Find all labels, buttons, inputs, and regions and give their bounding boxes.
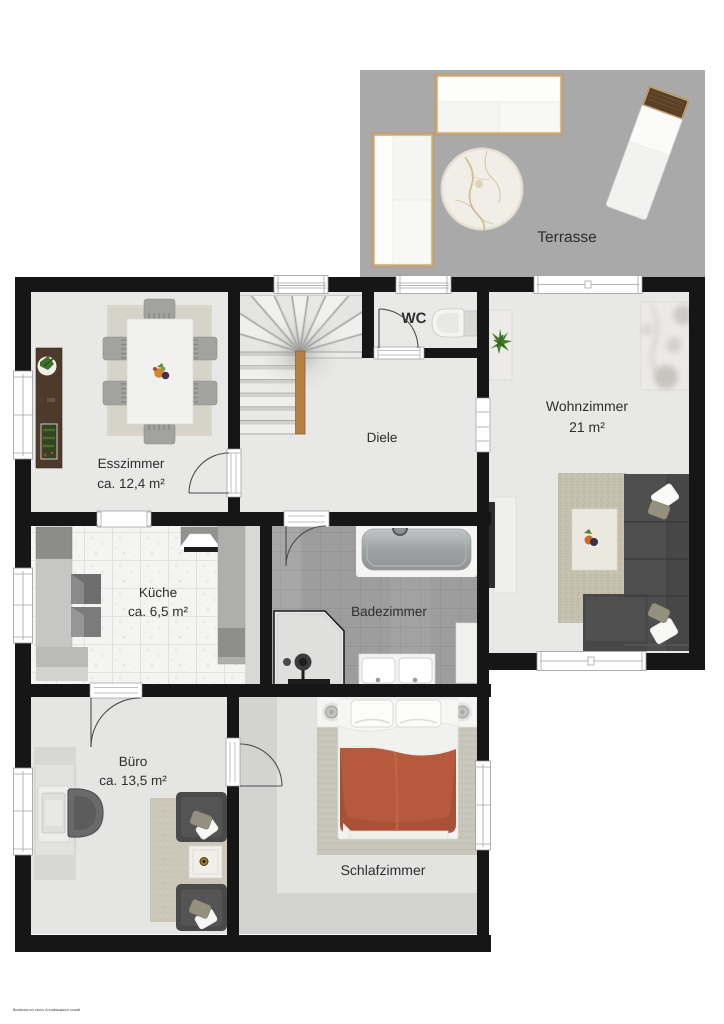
svg-text:Terrasse: Terrasse xyxy=(537,229,596,246)
svg-text:ca. 12,4 m²: ca. 12,4 m² xyxy=(97,476,165,491)
svg-text:Diele: Diele xyxy=(367,430,398,445)
svg-text:Büro: Büro xyxy=(119,754,148,769)
svg-text:ca. 13,5 m²: ca. 13,5 m² xyxy=(99,773,167,788)
svg-text:Bearbeitet mit einem Grundriss: Bearbeitet mit einem Grundrissplaner ers… xyxy=(13,1008,80,1012)
svg-text:Wohnzimmer: Wohnzimmer xyxy=(546,398,629,414)
svg-text:ca. 6,5 m²: ca. 6,5 m² xyxy=(128,604,189,619)
svg-text:Schlafzimmer: Schlafzimmer xyxy=(341,862,426,878)
svg-text:Esszimmer: Esszimmer xyxy=(98,456,165,471)
svg-text:21 m²: 21 m² xyxy=(569,419,605,435)
svg-text:Badezimmer: Badezimmer xyxy=(351,604,427,619)
svg-text:Küche: Küche xyxy=(139,585,177,600)
